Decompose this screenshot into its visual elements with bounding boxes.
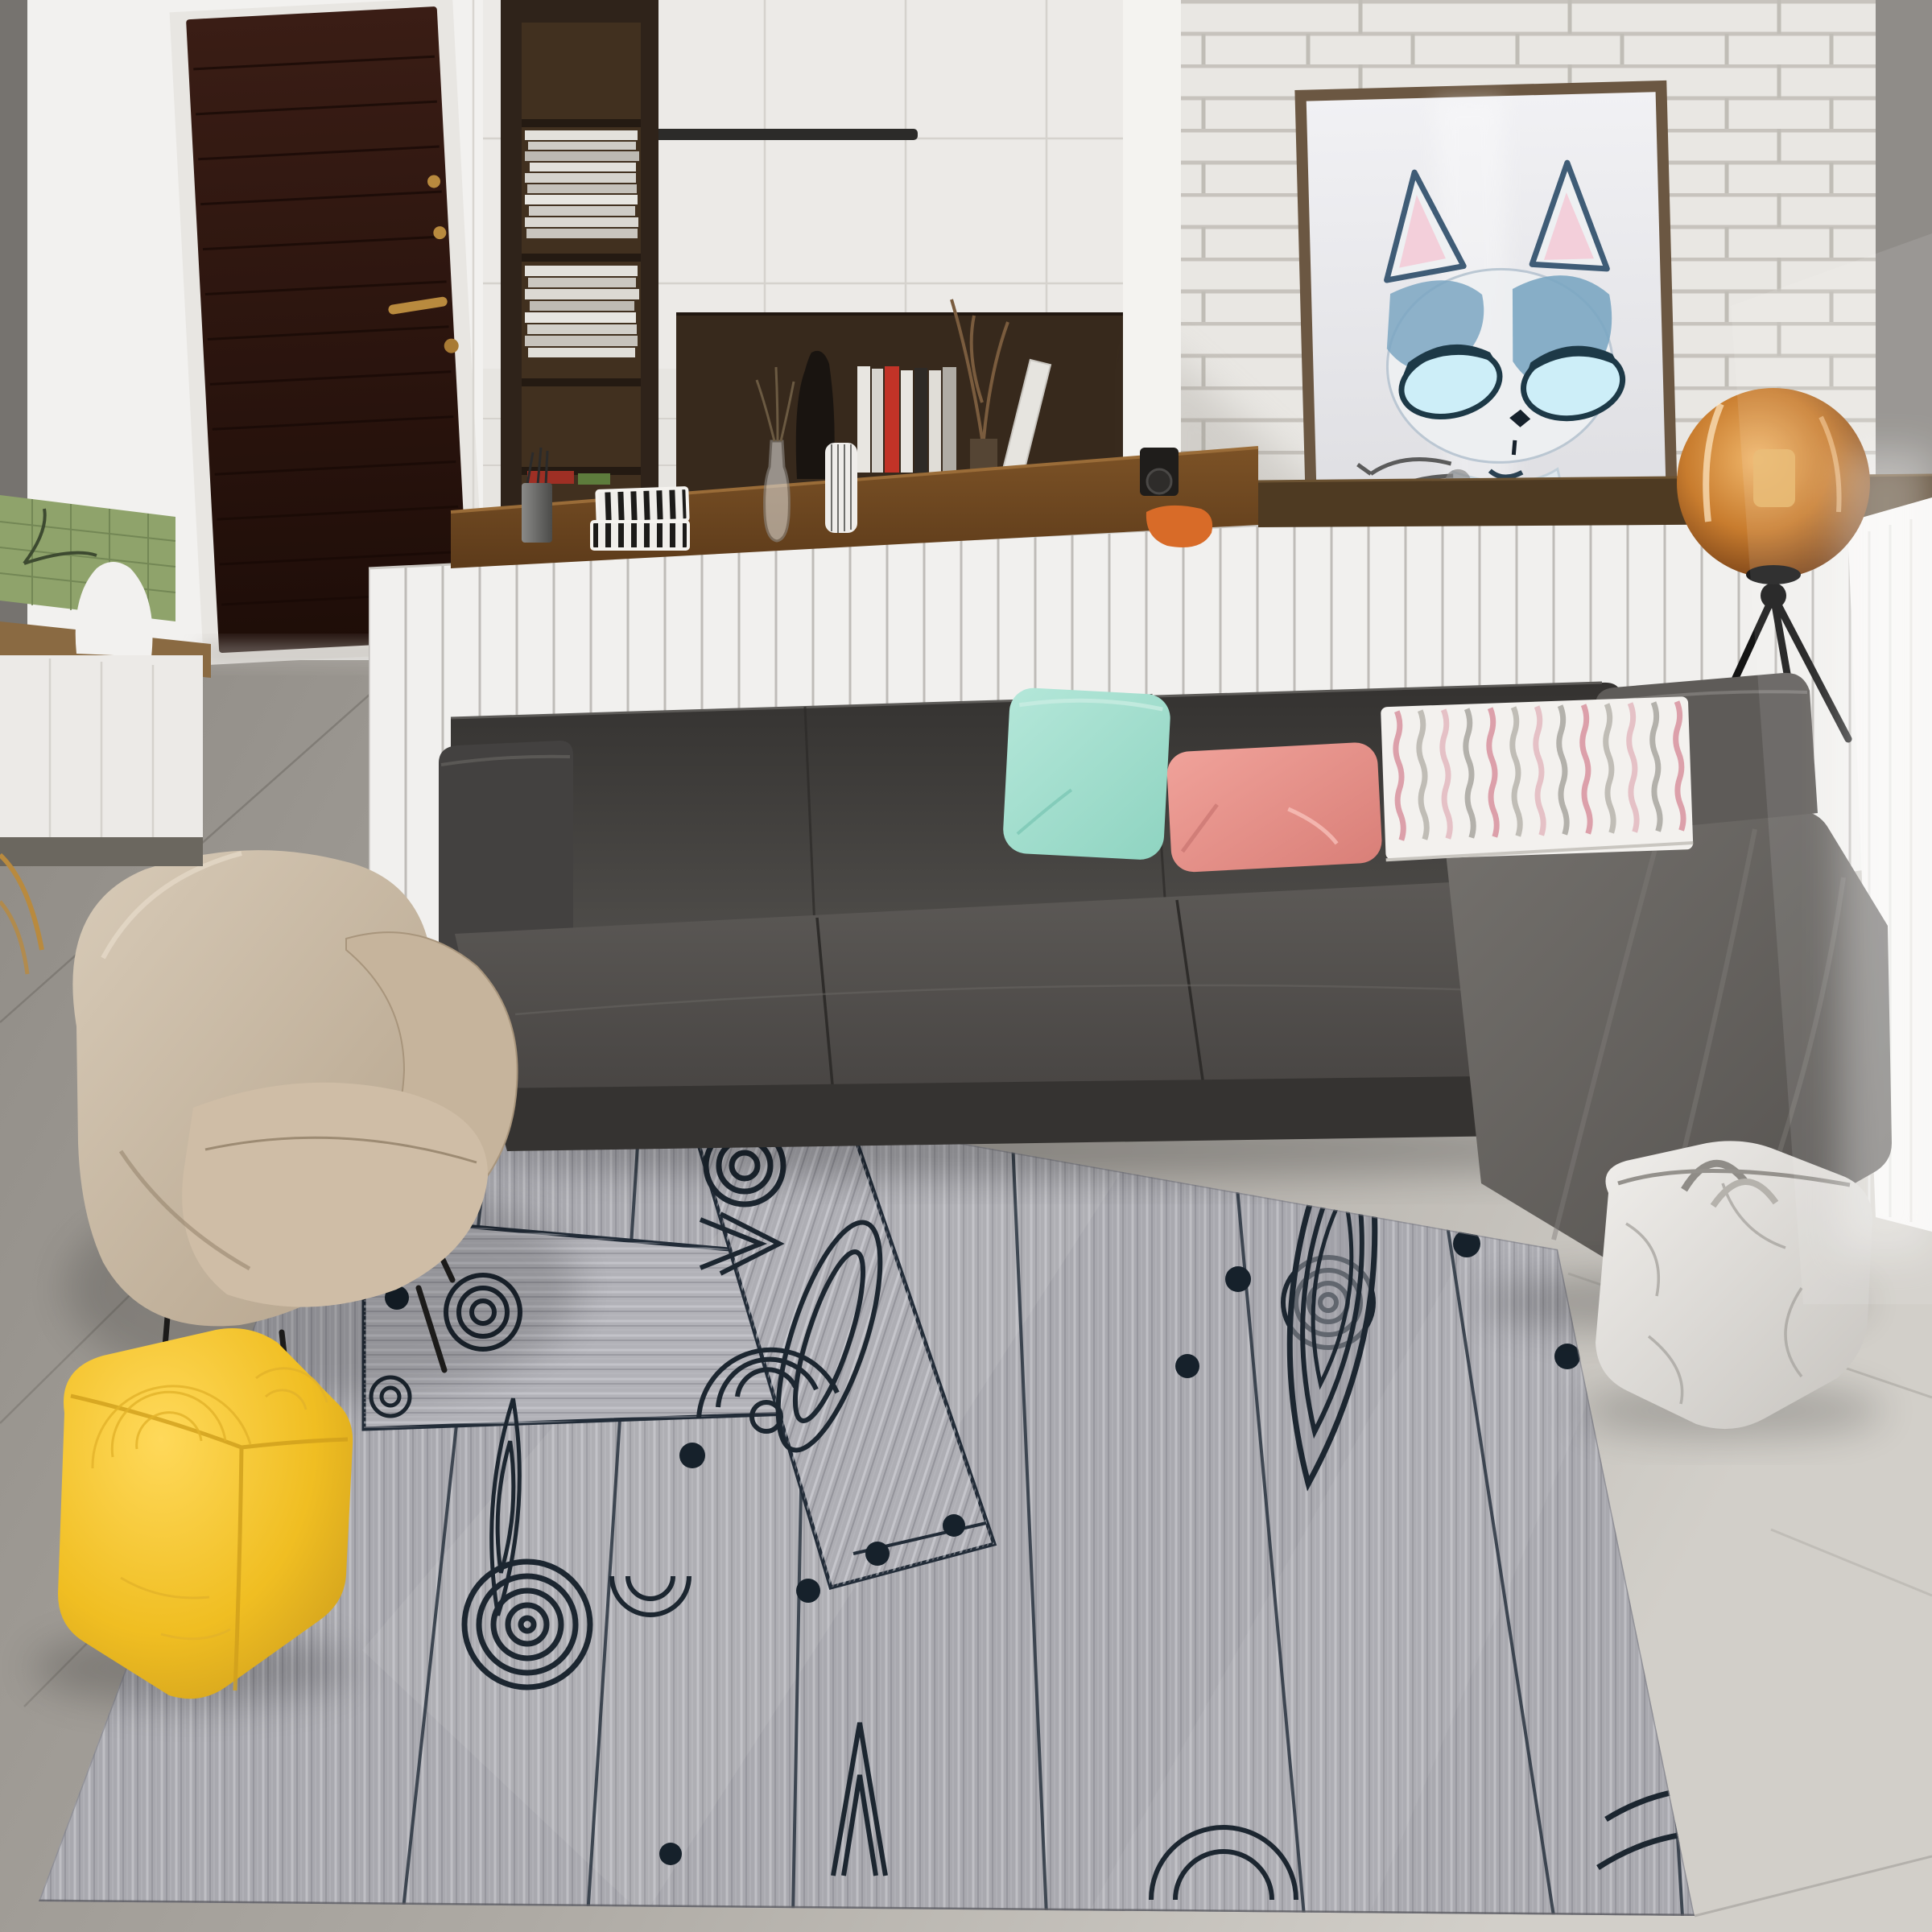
- throw-blanket: [1381, 696, 1693, 860]
- striped-books: [592, 488, 688, 549]
- camera: [1140, 448, 1179, 496]
- striped-vase: [825, 443, 857, 533]
- pink-pillow: [1166, 741, 1382, 873]
- living-room-photo: [0, 0, 1932, 1932]
- door-panel: [186, 6, 470, 653]
- scene-canvas: [0, 0, 1932, 1932]
- wall-pillar-white: [1123, 0, 1181, 522]
- yellow-pouf: [32, 1328, 354, 1705]
- teal-pillow: [1002, 687, 1172, 861]
